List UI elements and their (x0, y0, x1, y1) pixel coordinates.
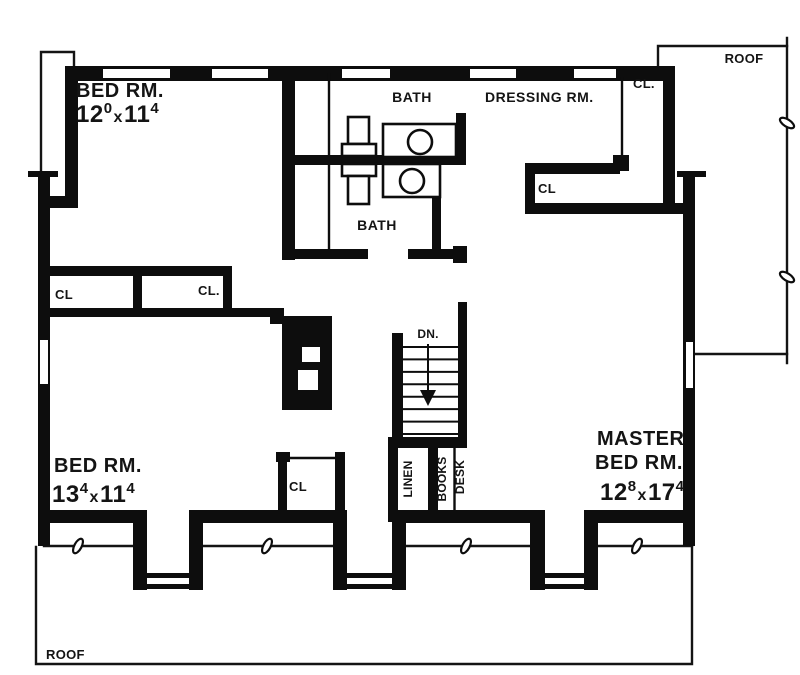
wall-left-jog (46, 196, 78, 208)
closet-mid-right-label: CL (538, 181, 556, 196)
roof-break-mark (459, 537, 473, 555)
dormer-window (545, 578, 584, 584)
bedroom2-dimensions: 134x114 (52, 480, 135, 508)
closet-door (613, 77, 629, 171)
books-label: BOOKS (435, 456, 449, 501)
wall-bottom-seg1 (38, 510, 135, 523)
wall-bath-bottom-a (282, 249, 368, 259)
window (103, 69, 170, 78)
wall-master-top (525, 203, 695, 214)
chimney-flue (298, 370, 318, 390)
master-bedroom-label-line2: BED RM. (595, 452, 683, 474)
window (212, 69, 268, 78)
roof-outline-upper-right (658, 38, 796, 363)
desk-label: DESK (453, 460, 467, 494)
plumbing-stack-lower-wide (342, 164, 376, 176)
wall-bath-lower-right (432, 197, 441, 249)
linen-label: LINEN (401, 461, 415, 498)
wall-linen-left (388, 437, 398, 522)
wall-stair-left (392, 333, 403, 437)
sink-lower (400, 169, 424, 193)
plumbing-stack-lower (348, 176, 369, 204)
dressing-room-label: DRESSING RM. (485, 89, 594, 105)
stairs-down-label: DN. (417, 327, 438, 341)
closet-top-right-label: CL. (633, 76, 655, 91)
roof-break-mark (630, 537, 644, 555)
wall-right-upper (663, 66, 675, 214)
bedroom1-dimensions: 120x114 (76, 100, 159, 128)
master-bedroom-dimensions: 128x174 (600, 478, 685, 506)
sink-upper (408, 130, 432, 154)
bath-upper-label: BATH (392, 89, 432, 105)
chimney-flue (302, 347, 320, 362)
roof-break-mark (260, 537, 274, 555)
window (40, 340, 48, 384)
roof-break-mark (778, 270, 795, 285)
window (342, 69, 390, 78)
roof-break-mark (71, 537, 85, 555)
wall-dressing-left (456, 113, 466, 165)
wall-bath-bottom-stub (453, 246, 467, 263)
door-pivot-block (613, 155, 629, 171)
plumbing-stack-upper (348, 117, 369, 144)
roof-lower-label: ROOF (46, 647, 85, 662)
wall-right-cap (677, 171, 706, 177)
roof-upper-label: ROOF (725, 51, 764, 66)
wall-left-cap (28, 171, 58, 177)
down-arrow-head (420, 390, 436, 406)
floor-plan-page: BED RM. 120x114 BATH DRESSING RM. BATH C… (0, 0, 800, 675)
wall-bottom-seg2 (203, 510, 335, 523)
wall-bedroom2-top (48, 308, 283, 317)
wall-stair-right (458, 302, 467, 437)
staircase (403, 344, 458, 434)
wall-linen-top (388, 437, 467, 448)
bedroom1-label: BED RM. (76, 80, 164, 102)
bedroom2-closet-walls (276, 452, 345, 512)
wall-bath-bottom-b (408, 249, 453, 259)
bedroom2-label: BED RM. (54, 455, 142, 477)
dormer-window (347, 578, 392, 584)
wall-bottom-seg3 (406, 510, 532, 523)
chimney (270, 308, 332, 410)
floor-plan-drawing: BED RM. 120x114 BATH DRESSING RM. BATH C… (0, 0, 800, 675)
wall-bottom-seg4 (598, 510, 695, 523)
dormer-window (147, 578, 189, 584)
window (470, 69, 516, 78)
wall-left-closets-divider (133, 266, 142, 317)
wall-left-closets-right (223, 266, 232, 317)
bath-lower-label: BATH (357, 217, 397, 233)
roof-break-mark (778, 116, 795, 131)
plumbing-stack-upper-wide (342, 144, 376, 156)
window (686, 342, 693, 388)
closet-left-b-label: CL. (198, 283, 220, 298)
master-bedroom-label-line1: MASTER (597, 428, 685, 450)
closet-left-a-label: CL (55, 287, 73, 302)
wall-mid-closet-top (525, 163, 620, 174)
closet-bedroom2-label: CL (289, 479, 307, 494)
window (574, 69, 616, 78)
